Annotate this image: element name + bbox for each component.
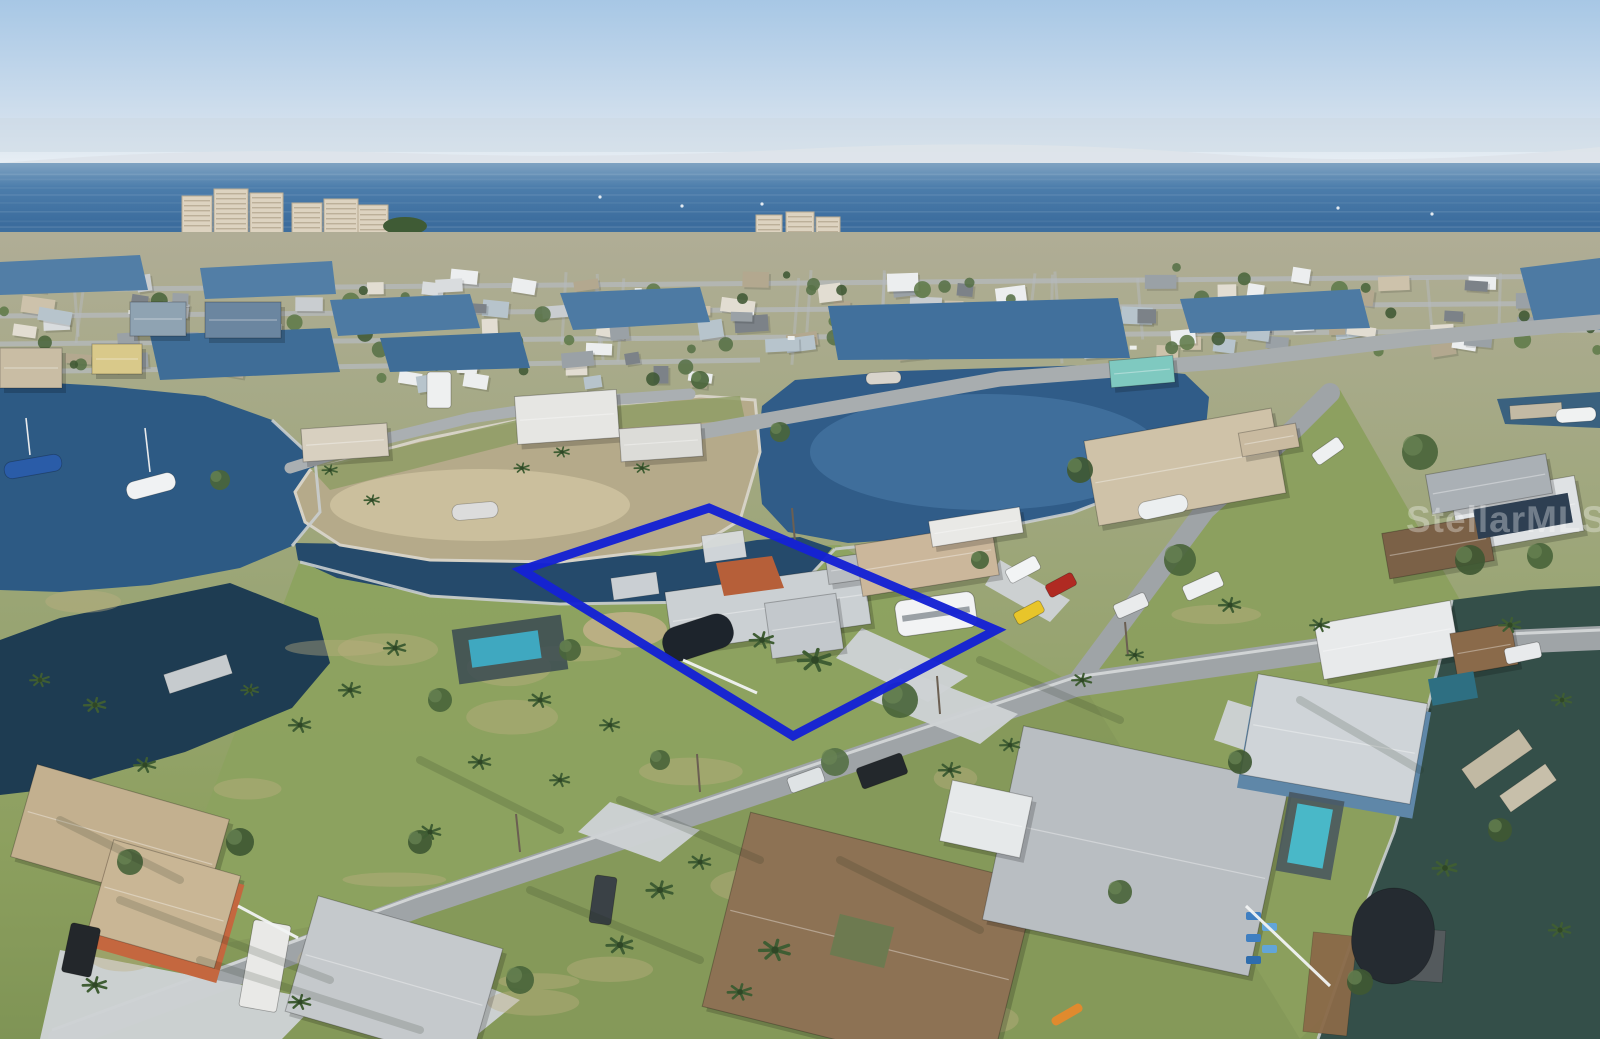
tree [1519,310,1530,321]
tree [535,306,551,322]
bay-sliver [0,255,148,295]
tree [376,373,386,383]
distant-house [561,351,594,369]
tree [836,285,847,296]
distant-house [295,297,323,311]
sailboat-dot [598,195,601,198]
dry-grass-patch [1171,605,1261,624]
distant-house [887,273,919,292]
distant-house [1378,276,1410,291]
tree [1385,308,1396,319]
tree [38,335,52,349]
tree [964,278,974,288]
haze-layer [0,118,1600,152]
condo-tower [250,193,283,233]
distant-house [742,271,769,287]
distant-car [1130,346,1137,350]
pool-chair [1246,956,1261,964]
sky [0,0,1600,163]
tree [678,359,693,374]
distant-house [435,278,463,293]
scene-canvas: StellarMLS [0,0,1600,1039]
tree [938,280,950,292]
distant-house [1444,311,1463,323]
tree [914,281,931,298]
tree [1361,283,1371,293]
upper-lake [828,298,1130,360]
tree [737,293,748,304]
watermark-mls-logo: StellarMLS [1406,499,1600,540]
tree [783,271,790,278]
tree [1165,341,1178,354]
distant-house [583,375,602,390]
pool-chair [1262,945,1277,953]
tree [1179,335,1194,350]
pontoon-lagoon [866,371,902,385]
tree [564,335,574,345]
dry-grass-patch [285,640,387,656]
vehicle [427,372,451,408]
dry-grass-patch [214,778,282,799]
condo-tower [182,196,212,233]
pool-chair [1246,934,1261,942]
distant-house [1137,309,1156,324]
dry-grass-patch [487,989,579,1015]
dry-grass-patch [466,700,558,735]
tree [359,286,368,295]
dry-grass-patch [45,590,121,613]
tree [1238,272,1251,285]
condo-tower [292,203,322,235]
distant-house [624,352,640,366]
distant-house [1465,280,1489,292]
tree [646,372,660,386]
sailboat-dot [1336,206,1339,209]
tree [719,337,733,351]
distant-car [788,336,795,340]
tree [1212,332,1225,345]
dry-grass-patch [567,957,653,982]
dry-grass-patch [343,872,447,886]
sailboat-dot [1430,212,1433,215]
subject-dock [701,530,746,563]
canal-patch [380,332,530,372]
aerial-listing-photo: StellarMLS [0,0,1600,1039]
sailboat-dot [680,204,683,207]
sailboat-dot [760,202,763,205]
distant-house [1291,267,1311,284]
distant-house [1145,275,1177,289]
tree [687,344,696,353]
condo-tower [324,199,358,235]
tree [806,285,816,295]
tree [1172,263,1181,272]
tree [287,314,303,330]
distant-house [367,282,384,294]
pontoon-boat [451,501,498,521]
distant-house [731,312,753,322]
condo-tower [358,205,388,235]
tree [70,360,78,368]
condo-tower [214,189,248,233]
boat-right-canal [1556,407,1597,424]
